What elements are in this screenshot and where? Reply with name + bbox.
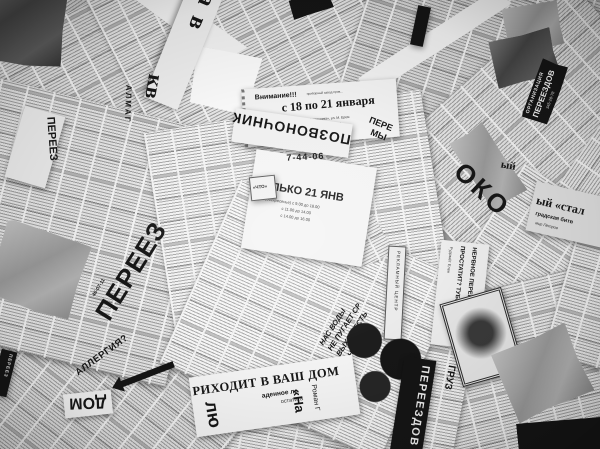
newspaper-collage: осква вквАЛМАГВнимание!!!приборный завод…	[0, 0, 600, 449]
lyu-vertical: лю	[202, 400, 224, 430]
pereez-small-text: ПЕРЕЕЗ	[3, 353, 13, 377]
pereezd-left-text: ПЕРЕЕЗ	[44, 116, 58, 161]
na-vertical: «На	[290, 388, 306, 413]
chto-box: «ЧТО»	[249, 175, 277, 202]
dom-scrap: ДОМ	[63, 390, 113, 419]
almag-text: АЛМАГ	[123, 85, 132, 124]
tolko-phone: 7-44-06	[286, 152, 324, 163]
kv-text: кв	[141, 73, 167, 101]
author-line: Рудомёт Елен	[446, 247, 453, 274]
yj-text: ый	[500, 160, 517, 173]
tolko-sched-3: с 14.00 до 16.00	[280, 214, 310, 223]
gruz-text: ГРУЗ	[442, 364, 456, 390]
stal-byline: мир Петров	[535, 221, 559, 230]
roman-vertical: Роман Г	[310, 384, 321, 411]
chto-text: «ЧТО»	[253, 185, 268, 191]
tolko-ad: 7-44-06ТОЛЬКО 21 ЯНВ(Воскресенье) с 9.00…	[241, 149, 377, 267]
dom-text: ДОМ	[64, 393, 113, 411]
photo-dark-corner	[0, 0, 69, 69]
